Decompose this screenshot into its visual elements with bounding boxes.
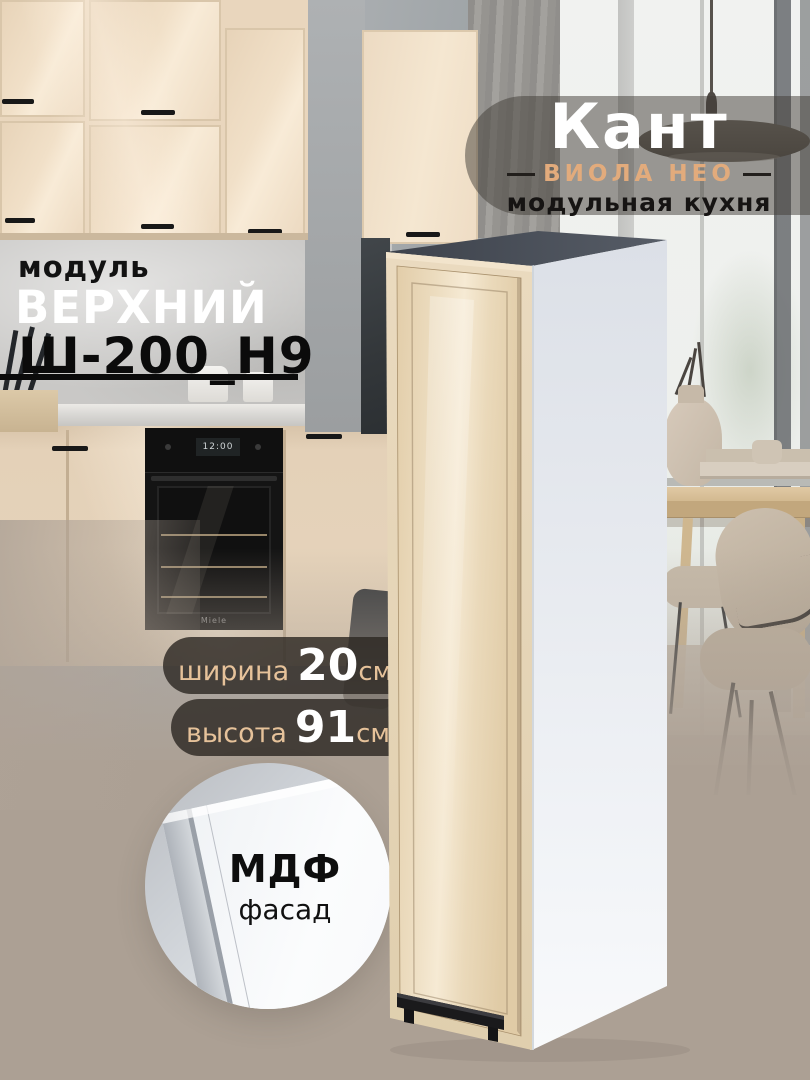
vase-neck bbox=[678, 385, 704, 403]
module-code-underline bbox=[0, 374, 298, 380]
knife-block bbox=[0, 390, 58, 432]
cabinet-handle bbox=[2, 99, 34, 104]
mdf-title: МДФ bbox=[205, 847, 365, 891]
dark-panel bbox=[361, 238, 390, 434]
series-dash-right bbox=[743, 173, 771, 176]
book bbox=[700, 462, 810, 479]
height-badge: высота 91 см bbox=[171, 699, 448, 756]
cabinet-handle bbox=[141, 110, 175, 115]
cabinet-door bbox=[225, 28, 305, 235]
oven-display: 12:00 bbox=[196, 438, 240, 456]
height-unit: см bbox=[356, 706, 390, 763]
cabinet-handle bbox=[406, 232, 440, 237]
product-card: 12:00 Miele ширина 20 см высота 91 см bbox=[0, 0, 810, 1080]
cup bbox=[752, 440, 782, 464]
width-unit: см bbox=[358, 644, 392, 701]
dining-table bbox=[658, 487, 810, 502]
cabinet-handle bbox=[52, 446, 88, 451]
height-label: высота bbox=[186, 705, 287, 762]
tall-cabinet-door bbox=[362, 30, 478, 244]
pendant-lamp-cord bbox=[710, 0, 713, 98]
series-dash-left bbox=[507, 173, 535, 176]
mdf-subtitle: фасад bbox=[205, 893, 365, 926]
cabinet-door bbox=[89, 125, 221, 235]
oven-knob bbox=[255, 444, 261, 450]
height-value: 91 bbox=[295, 699, 356, 756]
cabinet-door bbox=[89, 0, 221, 121]
brand-tagline: модульная кухня bbox=[478, 188, 800, 217]
background-solid bbox=[0, 795, 810, 1080]
series-text: ВИОЛА НЕО bbox=[543, 161, 735, 187]
cabinet-handle bbox=[141, 224, 174, 229]
mdf-detail-circle: МДФ фасад bbox=[145, 763, 391, 1009]
width-label: ширина bbox=[178, 643, 289, 700]
width-badge: ширина 20 см bbox=[163, 637, 448, 694]
width-value: 20 bbox=[297, 637, 358, 694]
cabinet-handle bbox=[5, 218, 35, 223]
cabinet-bottom-edge bbox=[0, 233, 308, 240]
oven-knob bbox=[165, 444, 171, 450]
cabinet-handle bbox=[306, 434, 342, 439]
oven-handle bbox=[151, 476, 277, 481]
upper-cabinets bbox=[0, 0, 308, 240]
brand-series: ВИОЛА НЕО bbox=[478, 161, 800, 187]
mdf-caption: МДФ фасад bbox=[205, 847, 365, 926]
module-label: модуль bbox=[18, 250, 150, 284]
brand-title: Кант bbox=[478, 94, 800, 160]
